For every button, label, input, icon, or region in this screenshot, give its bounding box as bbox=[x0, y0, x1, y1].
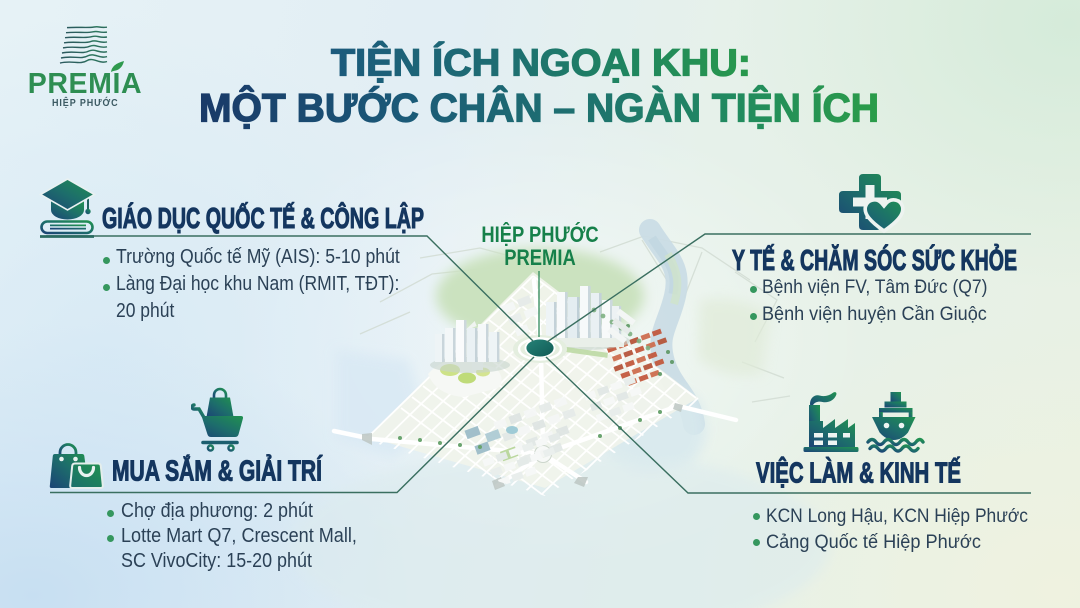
svg-text:VIỆC LÀM & KINH TẾ: VIỆC LÀM & KINH TẾ bbox=[756, 456, 961, 490]
